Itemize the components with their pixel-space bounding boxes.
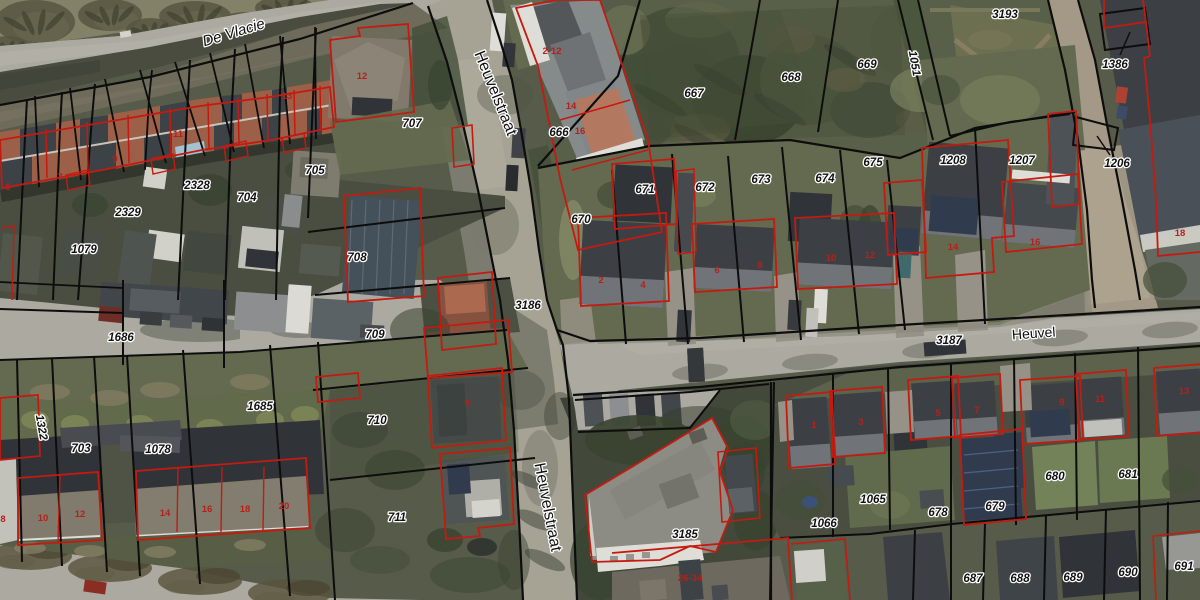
- svg-text:673: 673: [751, 174, 771, 186]
- svg-text:690: 690: [1118, 567, 1138, 579]
- svg-text:711: 711: [388, 512, 406, 524]
- svg-text:1685: 1685: [247, 401, 273, 413]
- svg-text:668: 668: [781, 72, 801, 84]
- svg-text:1686: 1686: [108, 332, 134, 344]
- svg-text:2328: 2328: [183, 180, 210, 192]
- svg-text:1078: 1078: [145, 444, 171, 456]
- svg-text:705: 705: [305, 165, 325, 177]
- svg-text:16: 16: [202, 504, 213, 515]
- svg-text:14: 14: [160, 508, 171, 519]
- svg-text:669: 669: [857, 59, 877, 71]
- svg-text:20: 20: [279, 501, 290, 512]
- svg-text:1079: 1079: [71, 244, 97, 256]
- svg-text:672: 672: [695, 182, 715, 194]
- svg-text:8: 8: [757, 260, 762, 271]
- svg-text:710: 710: [367, 415, 387, 427]
- svg-text:675: 675: [863, 157, 883, 169]
- svg-text:12: 12: [357, 71, 368, 82]
- svg-text:9: 9: [1059, 397, 1064, 408]
- svg-text:12: 12: [75, 509, 86, 520]
- svg-text:26-34: 26-34: [678, 573, 703, 584]
- svg-text:14: 14: [566, 101, 577, 112]
- svg-text:9: 9: [112, 154, 117, 165]
- svg-text:10: 10: [38, 513, 49, 524]
- svg-text:687: 687: [963, 573, 983, 585]
- svg-text:671: 671: [635, 184, 654, 196]
- svg-text:13: 13: [1179, 386, 1190, 397]
- svg-text:2329: 2329: [114, 207, 141, 219]
- svg-text:679: 679: [985, 501, 1005, 513]
- svg-text:13: 13: [282, 91, 293, 102]
- svg-text:5: 5: [935, 408, 941, 419]
- svg-text:9: 9: [464, 398, 469, 409]
- svg-text:2-12: 2-12: [542, 46, 561, 57]
- svg-text:10: 10: [826, 253, 837, 264]
- svg-text:5: 5: [5, 182, 11, 193]
- svg-text:674: 674: [815, 173, 835, 185]
- svg-text:14: 14: [948, 242, 959, 253]
- svg-text:7: 7: [57, 172, 62, 183]
- svg-text:667: 667: [684, 88, 704, 100]
- svg-text:678: 678: [928, 507, 948, 519]
- svg-text:1: 1: [811, 420, 817, 431]
- svg-text:Heuvel: Heuvel: [1011, 324, 1056, 343]
- svg-text:707: 707: [402, 118, 422, 130]
- svg-text:6: 6: [714, 265, 719, 276]
- svg-text:3: 3: [858, 417, 863, 428]
- svg-text:704: 704: [237, 192, 257, 204]
- svg-text:691: 691: [1174, 561, 1193, 573]
- svg-text:3193: 3193: [992, 9, 1018, 21]
- svg-text:16: 16: [575, 126, 586, 137]
- svg-text:3187: 3187: [936, 335, 962, 347]
- svg-text:11: 11: [1095, 394, 1106, 405]
- svg-text:3186: 3186: [515, 300, 541, 312]
- svg-text:1206: 1206: [1104, 158, 1130, 170]
- svg-text:1208: 1208: [940, 155, 966, 167]
- svg-text:709: 709: [365, 329, 385, 341]
- svg-text:3185: 3185: [672, 529, 698, 541]
- svg-text:688: 688: [1010, 573, 1030, 585]
- svg-text:703: 703: [71, 443, 91, 455]
- svg-text:681: 681: [1118, 469, 1137, 481]
- svg-text:4: 4: [640, 280, 646, 291]
- svg-text:12: 12: [865, 250, 876, 261]
- svg-text:670: 670: [571, 214, 591, 226]
- svg-text:1066: 1066: [811, 518, 837, 530]
- svg-text:1065: 1065: [860, 494, 886, 506]
- svg-text:666: 666: [549, 127, 569, 139]
- svg-text:18: 18: [240, 504, 251, 515]
- svg-text:8: 8: [0, 514, 5, 525]
- svg-text:689: 689: [1063, 572, 1083, 584]
- svg-text:708: 708: [347, 252, 367, 264]
- svg-text:16: 16: [1030, 237, 1041, 248]
- svg-text:11: 11: [173, 129, 184, 140]
- svg-text:2: 2: [598, 275, 603, 286]
- svg-text:1386: 1386: [1102, 59, 1128, 71]
- svg-text:1207: 1207: [1009, 155, 1035, 167]
- svg-text:7: 7: [974, 405, 979, 416]
- svg-text:18: 18: [1175, 228, 1186, 239]
- svg-text:680: 680: [1045, 471, 1065, 483]
